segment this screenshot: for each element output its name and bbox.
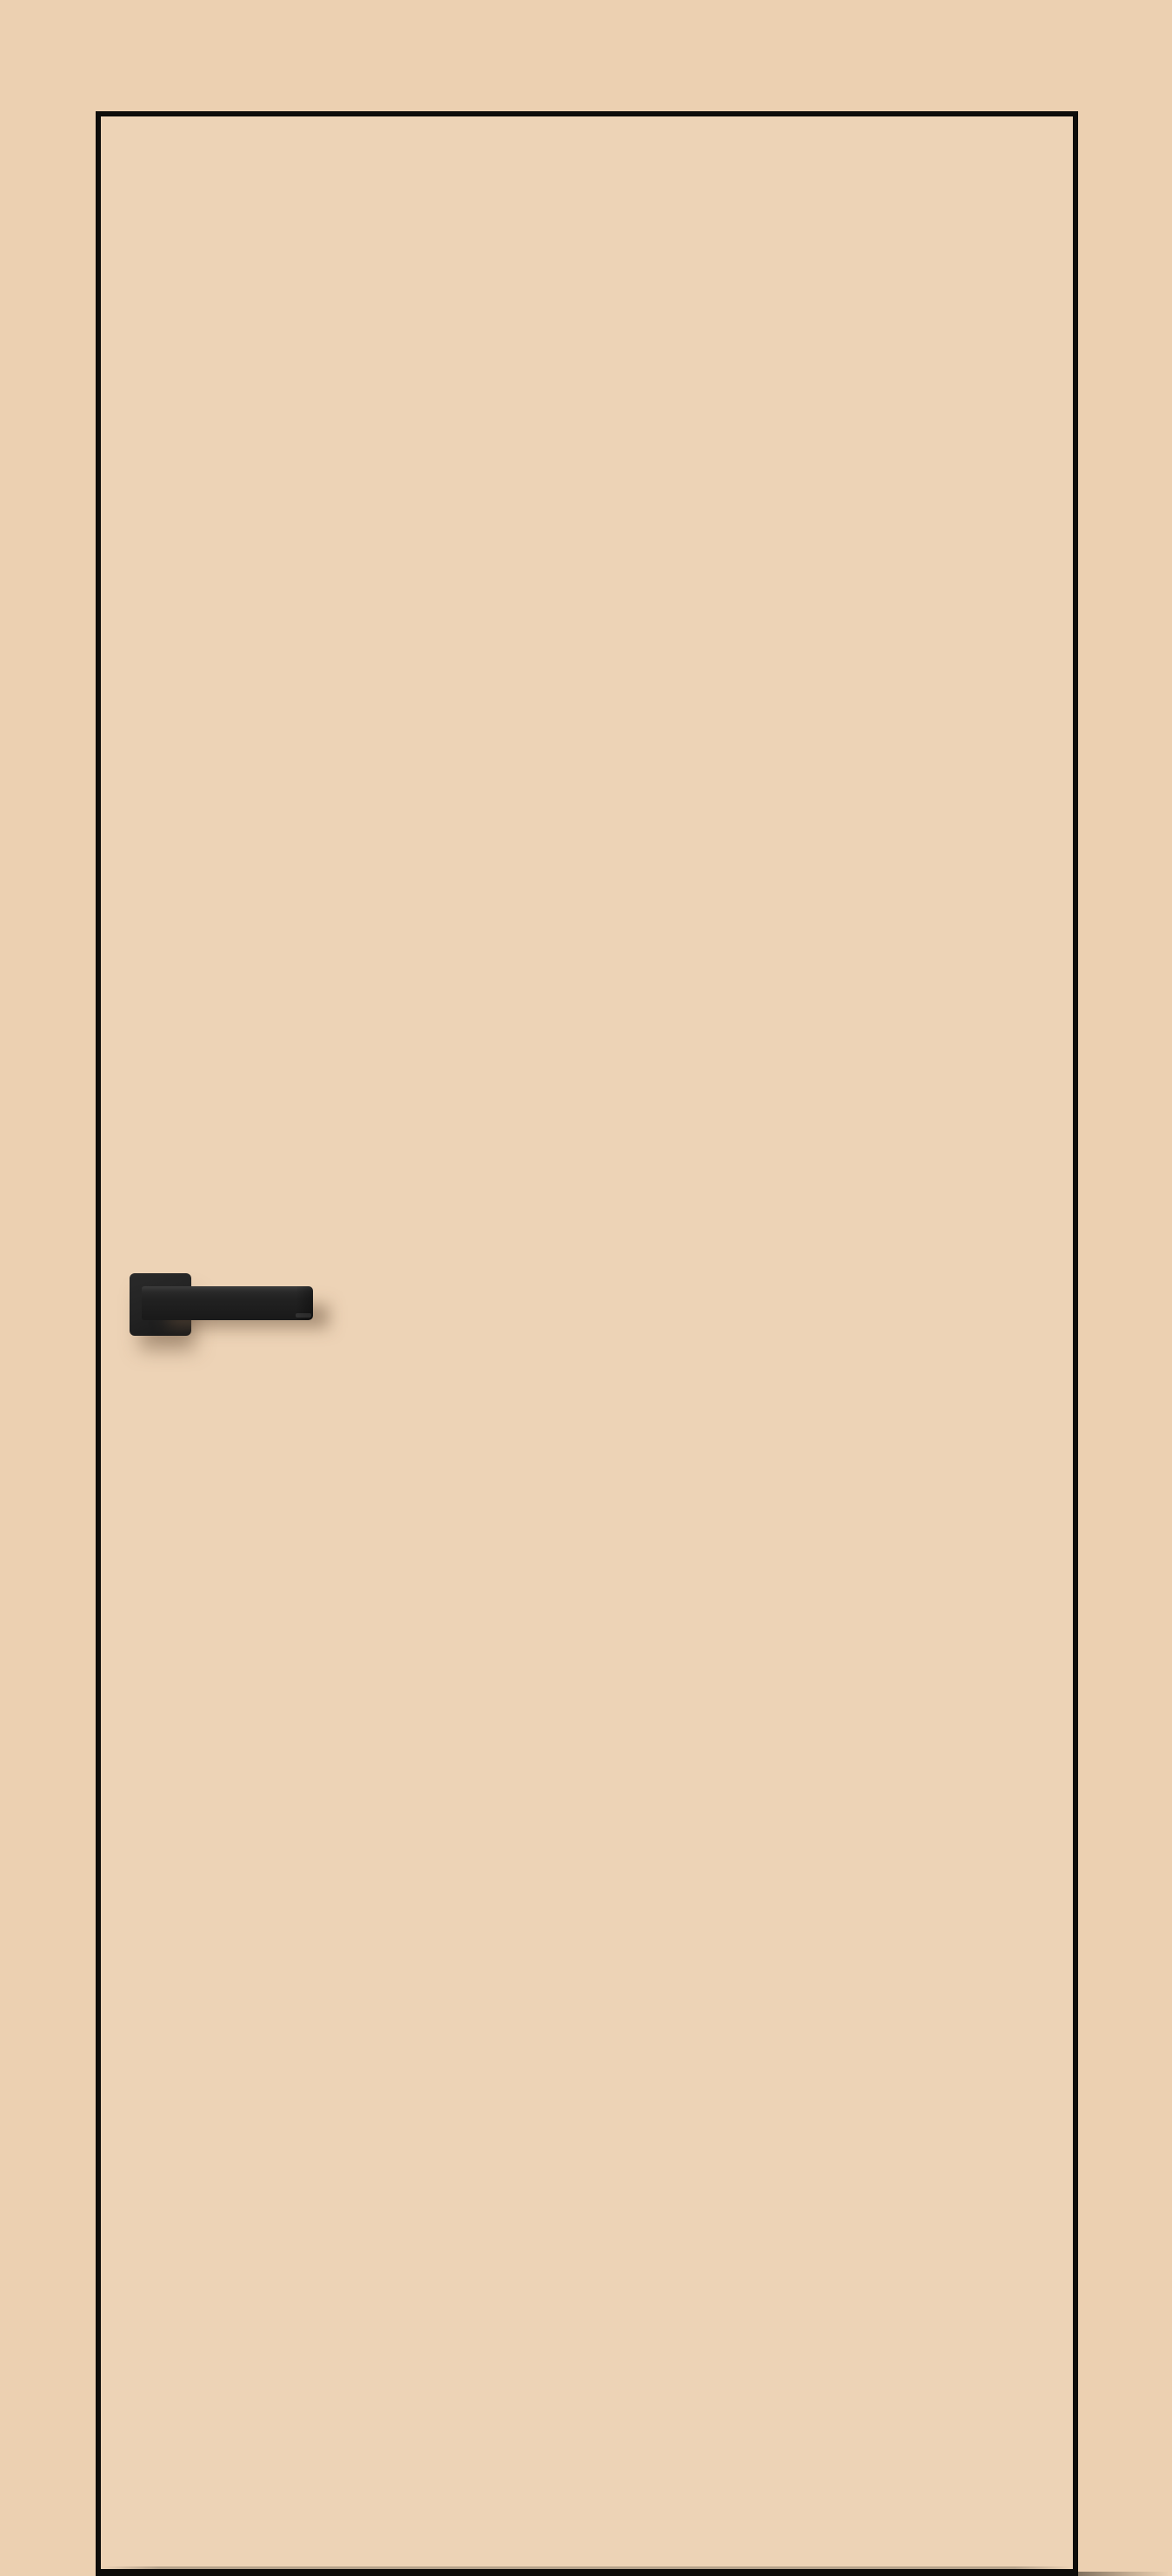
door-handle-lever-icon — [142, 1286, 313, 1320]
product-photo-background — [0, 0, 1172, 2576]
floor-shadow — [1078, 2572, 1169, 2576]
door-leaf — [96, 111, 1078, 2576]
door-floor-gap-line — [101, 2566, 1073, 2569]
